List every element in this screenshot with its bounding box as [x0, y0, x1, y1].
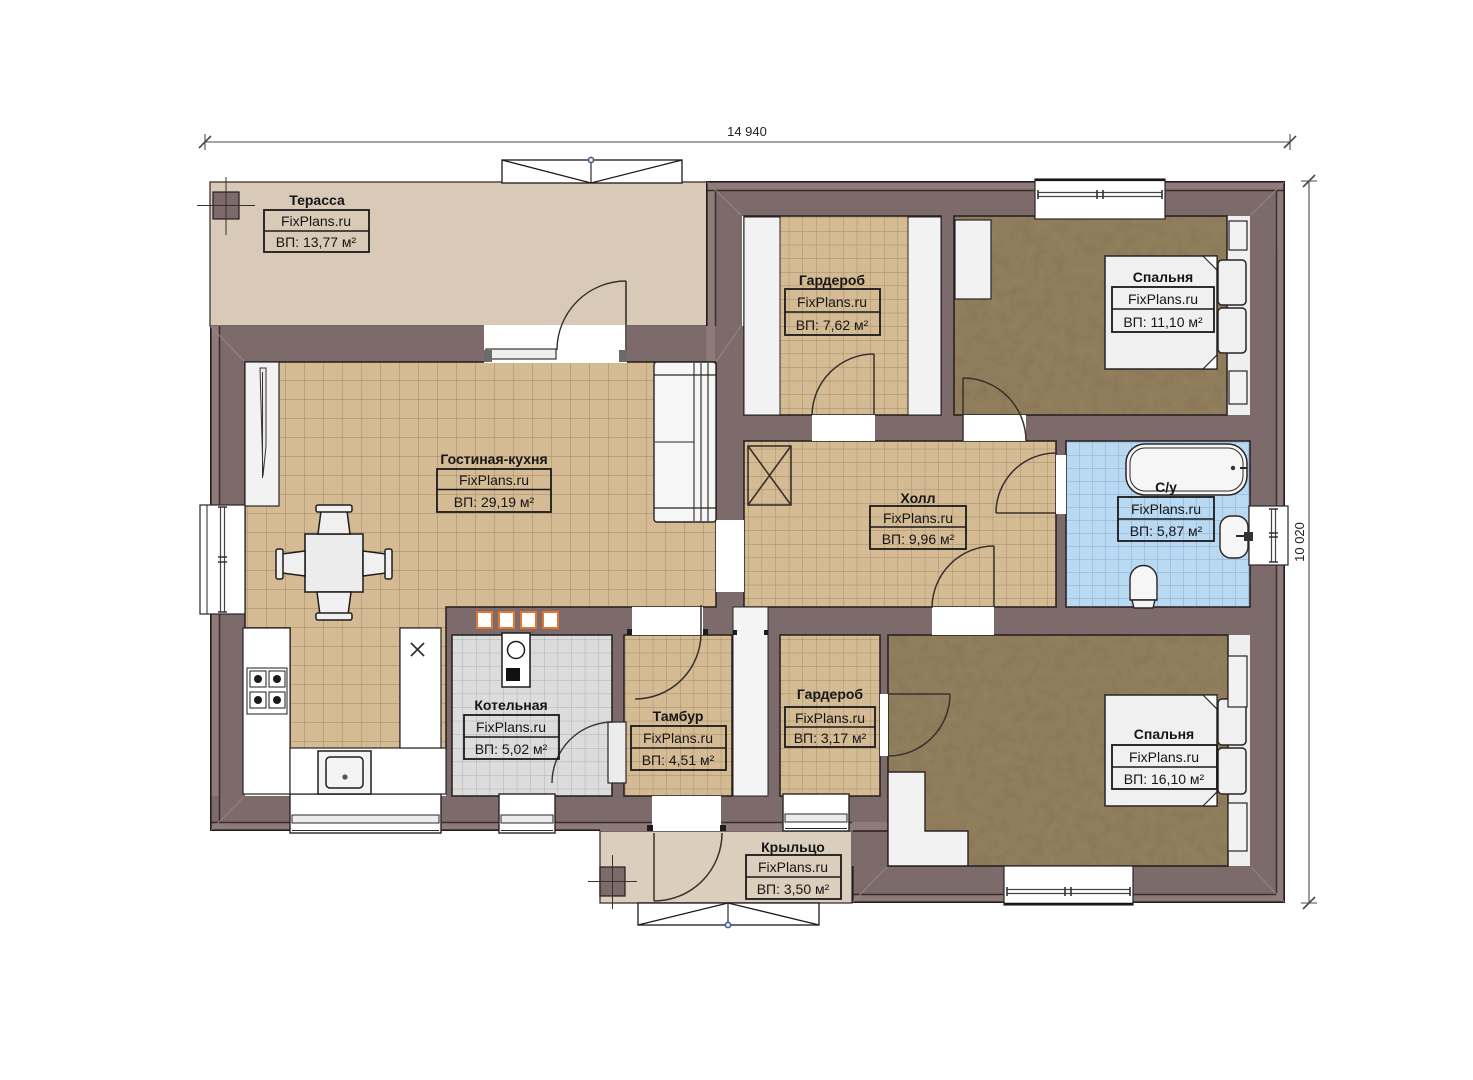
svg-text:Спальня: Спальня [1133, 269, 1193, 285]
svg-text:FixPlans.ru: FixPlans.ru [883, 510, 953, 526]
svg-text:FixPlans.ru: FixPlans.ru [1128, 291, 1198, 307]
svg-text:ВП: 13,77 м²: ВП: 13,77 м² [276, 234, 357, 250]
svg-text:ВП: 9,96 м²: ВП: 9,96 м² [882, 531, 955, 547]
svg-text:FixPlans.ru: FixPlans.ru [281, 213, 351, 229]
svg-text:FixPlans.ru: FixPlans.ru [1129, 749, 1199, 765]
svg-text:Гардероб: Гардероб [799, 272, 866, 288]
svg-text:FixPlans.ru: FixPlans.ru [476, 719, 546, 735]
svg-text:Спальня: Спальня [1134, 726, 1194, 742]
svg-text:Гостиная-кухня: Гостиная-кухня [440, 451, 547, 467]
svg-text:FixPlans.ru: FixPlans.ru [459, 472, 529, 488]
svg-text:ВП: 16,10 м²: ВП: 16,10 м² [1124, 771, 1205, 787]
svg-text:Холл: Холл [900, 490, 935, 506]
svg-text:FixPlans.ru: FixPlans.ru [643, 730, 713, 746]
svg-text:ВП: 7,62 м²: ВП: 7,62 м² [796, 317, 869, 333]
svg-text:14 940: 14 940 [727, 124, 767, 139]
svg-text:ВП: 4,51 м²: ВП: 4,51 м² [642, 752, 715, 768]
svg-text:FixPlans.ru: FixPlans.ru [795, 710, 865, 726]
svg-text:ВП: 11,10 м²: ВП: 11,10 м² [1123, 314, 1203, 330]
svg-text:ВП: 3,17 м²: ВП: 3,17 м² [794, 730, 867, 746]
svg-text:10 020: 10 020 [1292, 522, 1307, 562]
svg-text:Тамбур: Тамбур [653, 708, 704, 724]
svg-text:FixPlans.ru: FixPlans.ru [758, 859, 828, 875]
svg-text:Гардероб: Гардероб [797, 686, 864, 702]
svg-text:С/у: С/у [1155, 479, 1177, 495]
svg-text:ВП: 5,87 м²: ВП: 5,87 м² [1130, 523, 1203, 539]
svg-text:Котельная: Котельная [474, 697, 547, 713]
svg-text:Терасса: Терасса [289, 192, 345, 208]
svg-text:ВП: 3,50 м²: ВП: 3,50 м² [757, 881, 830, 897]
svg-text:FixPlans.ru: FixPlans.ru [1131, 501, 1201, 517]
svg-text:ВП: 29,19 м²: ВП: 29,19 м² [454, 494, 535, 510]
svg-text:FixPlans.ru: FixPlans.ru [797, 294, 867, 310]
svg-text:Крыльцо: Крыльцо [761, 839, 825, 855]
svg-text:ВП: 5,02 м²: ВП: 5,02 м² [475, 741, 548, 757]
